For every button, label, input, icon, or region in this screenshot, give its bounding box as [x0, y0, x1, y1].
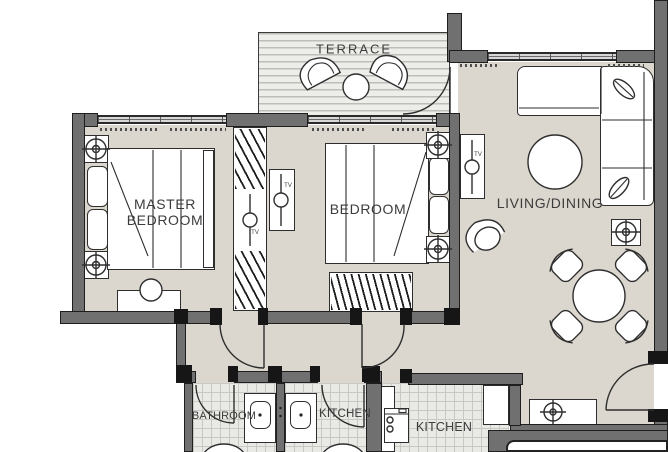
wall-segment: [449, 50, 488, 63]
pillow: [87, 209, 108, 250]
room-label-master-bedroom: MASTER BEDROOM: [127, 196, 204, 228]
floor-plan: TERRACE MASTER BEDROOM BEDROOM LIVING/DI…: [0, 0, 668, 452]
adjacent-unit: [506, 440, 668, 452]
wall-right-exterior: [654, 0, 668, 353]
pillow: [87, 166, 108, 207]
tv-label: TV: [474, 152, 482, 158]
door-jamb: [210, 308, 222, 325]
dresser: [117, 290, 181, 312]
ceiling-fixture-box: [611, 219, 641, 246]
nightstand: [83, 251, 109, 279]
room-label-kitchen: KITCHEN: [319, 408, 371, 420]
door-jamb: [228, 366, 238, 382]
room-label-terrace: TERRACE: [316, 42, 392, 57]
nightstand: [426, 236, 450, 263]
wardrobe-hangers: [235, 129, 265, 189]
wall-bath-kitchen-divider: [276, 383, 285, 452]
nightstand: [83, 135, 109, 163]
curtain-mark: [392, 128, 436, 131]
door-jamb: [268, 366, 282, 382]
room-label-living-dining: LIVING/DINING: [497, 195, 604, 211]
floor-threshold-kitchen: [318, 371, 364, 383]
door-jamb: [648, 409, 668, 422]
wall-segment: [226, 113, 308, 127]
door-jamb: [310, 366, 320, 382]
wall-bedroom-living: [449, 113, 460, 324]
floor-threshold-bedroom: [360, 311, 404, 324]
pillow: [429, 196, 449, 234]
window-living: [488, 52, 616, 61]
bed-bench: [203, 150, 214, 268]
entry-shelf: [529, 399, 597, 425]
room-label-bedroom: BEDROOM: [330, 201, 407, 217]
kitchen-basin: [290, 401, 311, 429]
master-label-line1: MASTER: [127, 196, 204, 212]
kitchen2-appliance: [384, 408, 409, 443]
curtain-mark: [460, 64, 498, 67]
wall-kitchen2-right: [509, 385, 521, 426]
wall-kitchen2-top: [408, 373, 523, 385]
room-label-kitchen2: KITCHEN: [416, 420, 472, 434]
tv-label: TV: [251, 230, 259, 236]
curtain-mark: [608, 64, 644, 67]
sofa-top: [517, 66, 602, 116]
curtain-mark: [170, 128, 226, 131]
nightstand: [426, 132, 450, 159]
wall-left-exterior: [72, 113, 85, 324]
door-jamb: [648, 351, 668, 364]
door-jamb: [444, 308, 460, 325]
closet-hangers: [331, 274, 411, 310]
door-jamb: [176, 365, 192, 382]
door-jamb: [400, 308, 412, 325]
tv-label: TV: [284, 183, 292, 189]
room-label-bathroom: BATHROOM: [192, 410, 256, 422]
window-bedroom: [308, 115, 436, 124]
door-jamb: [258, 308, 268, 325]
wall-segment: [60, 311, 222, 324]
pillow: [429, 157, 449, 195]
kitchen2-counter: [483, 385, 509, 425]
tv-unit-bedroom: [269, 169, 295, 231]
door-jamb: [174, 309, 188, 324]
tv-unit-living: [460, 134, 485, 199]
wall-segment: [262, 311, 362, 324]
wardrobe-hangers: [235, 251, 265, 309]
door-jamb: [400, 369, 412, 383]
door-jamb: [350, 308, 362, 325]
curtain-mark: [100, 128, 158, 131]
window-master: [98, 115, 226, 124]
master-label-line2: BEDROOM: [127, 212, 204, 228]
curtain-mark: [312, 128, 364, 131]
door-jamb: [362, 366, 380, 382]
sofa-right: [600, 66, 654, 206]
